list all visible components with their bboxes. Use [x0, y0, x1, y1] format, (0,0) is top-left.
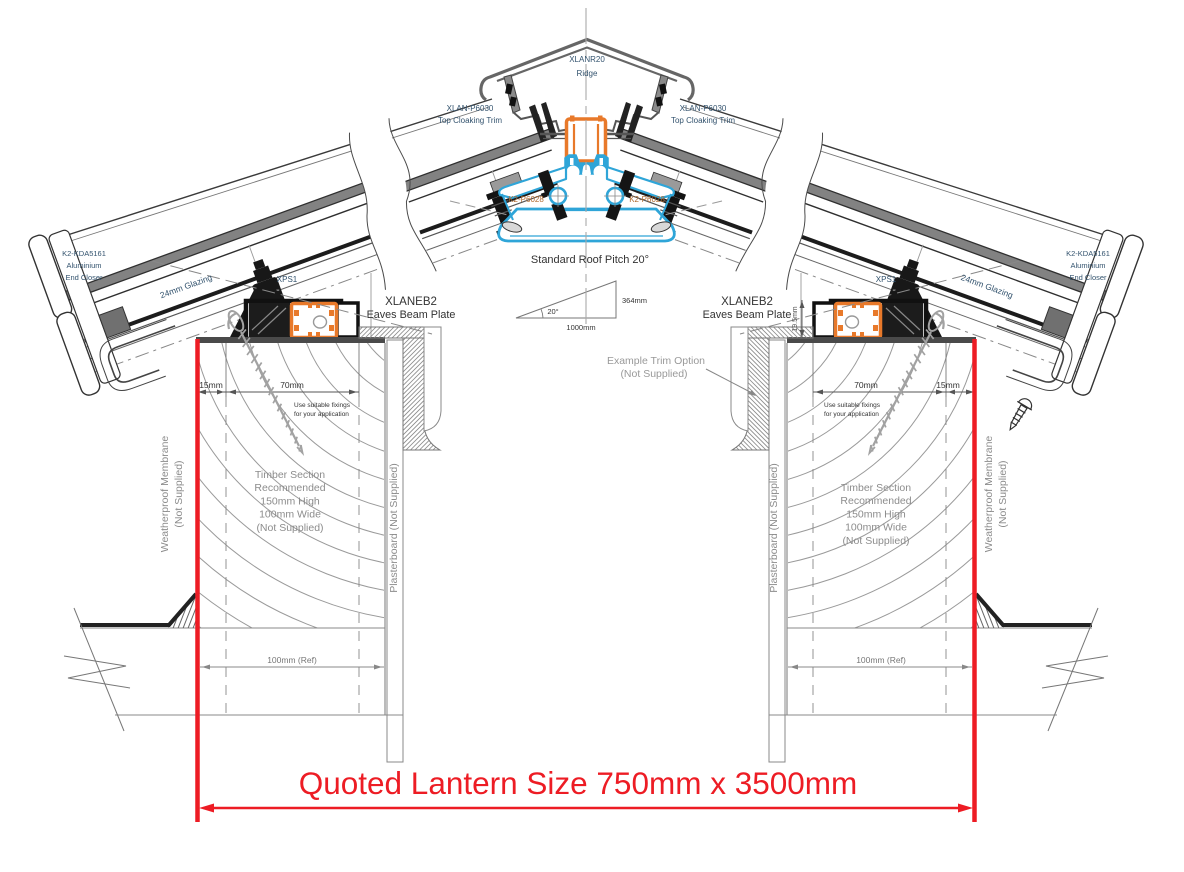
svg-text:100mm Wide: 100mm Wide — [259, 509, 321, 521]
svg-text:Example Trim Option: Example Trim Option — [607, 355, 705, 367]
svg-text:100mm Wide: 100mm Wide — [845, 522, 907, 534]
svg-text:Recommended: Recommended — [254, 482, 325, 494]
svg-text:Eaves Beam Plate: Eaves Beam Plate — [703, 309, 792, 321]
svg-text:100mm (Ref): 100mm (Ref) — [856, 655, 906, 665]
svg-text:(Not Supplied): (Not Supplied) — [997, 460, 1009, 527]
svg-text:Ridge: Ridge — [577, 69, 598, 78]
svg-text:XLANEB2: XLANEB2 — [385, 296, 437, 308]
svg-text:End Closer: End Closer — [1069, 273, 1107, 282]
svg-text:70mm: 70mm — [854, 380, 878, 390]
svg-text:Use suitable fixings: Use suitable fixings — [824, 402, 881, 409]
svg-text:XLAN-P6030: XLAN-P6030 — [680, 104, 727, 113]
svg-text:Timber Section: Timber Section — [255, 469, 325, 481]
svg-text:End Closer: End Closer — [65, 273, 103, 282]
svg-text:XPS1: XPS1 — [277, 275, 298, 284]
svg-text:(Not Supplied): (Not Supplied) — [620, 368, 687, 380]
svg-text:for your application: for your application — [294, 411, 349, 418]
svg-text:Standard Roof Pitch 20°: Standard Roof Pitch 20° — [531, 254, 649, 266]
svg-text:Top Cloaking Trim: Top Cloaking Trim — [438, 116, 502, 125]
svg-text:XLANR20: XLANR20 — [569, 55, 605, 64]
svg-text:19.5mm: 19.5mm — [792, 306, 799, 331]
svg-text:XLANEB2: XLANEB2 — [721, 296, 773, 308]
svg-text:70mm: 70mm — [280, 380, 304, 390]
svg-text:Top Cloaking Trim: Top Cloaking Trim — [671, 116, 735, 125]
svg-text:Quoted Lantern Size 750mm x 35: Quoted Lantern Size 750mm x 3500mm — [299, 765, 858, 801]
svg-text:(Not Supplied): (Not Supplied) — [256, 522, 323, 534]
svg-text:(Not Supplied): (Not Supplied) — [173, 460, 185, 527]
svg-text:Plasterboard (Not Supplied): Plasterboard (Not Supplied) — [768, 463, 780, 593]
svg-text:100mm (Ref): 100mm (Ref) — [267, 655, 317, 665]
svg-text:Use suitable fixings: Use suitable fixings — [294, 402, 351, 409]
svg-text:Recommended: Recommended — [840, 495, 911, 507]
svg-text:XLAN-P6030: XLAN-P6030 — [447, 104, 494, 113]
svg-text:150mm High: 150mm High — [846, 508, 906, 520]
svg-text:20°: 20° — [547, 307, 558, 316]
svg-text:(Not Supplied): (Not Supplied) — [842, 535, 909, 547]
svg-text:Aluminium: Aluminium — [66, 261, 101, 270]
svg-text:Weatherproof Membrane: Weatherproof Membrane — [159, 436, 171, 553]
svg-text:for your application: for your application — [824, 411, 879, 418]
svg-text:Aluminium: Aluminium — [1070, 261, 1105, 270]
svg-text:Weatherproof Membrane: Weatherproof Membrane — [983, 436, 995, 553]
svg-text:15mm: 15mm — [199, 380, 223, 390]
svg-text:K2-KDA5161: K2-KDA5161 — [62, 249, 106, 258]
svg-text:Timber Section: Timber Section — [841, 482, 911, 494]
svg-text:150mm High: 150mm High — [260, 495, 320, 507]
svg-text:1000mm: 1000mm — [566, 323, 595, 332]
svg-text:K2-P6028: K2-P6028 — [508, 195, 544, 204]
svg-text:XPS1: XPS1 — [876, 275, 897, 284]
svg-text:364mm: 364mm — [622, 296, 647, 305]
svg-text:Eaves Beam Plate: Eaves Beam Plate — [367, 309, 456, 321]
svg-text:K2-P6028: K2-P6028 — [629, 195, 665, 204]
svg-text:K2-KDA5161: K2-KDA5161 — [1066, 249, 1110, 258]
svg-text:15mm: 15mm — [936, 380, 960, 390]
svg-text:Plasterboard (Not Supplied): Plasterboard (Not Supplied) — [388, 463, 400, 593]
